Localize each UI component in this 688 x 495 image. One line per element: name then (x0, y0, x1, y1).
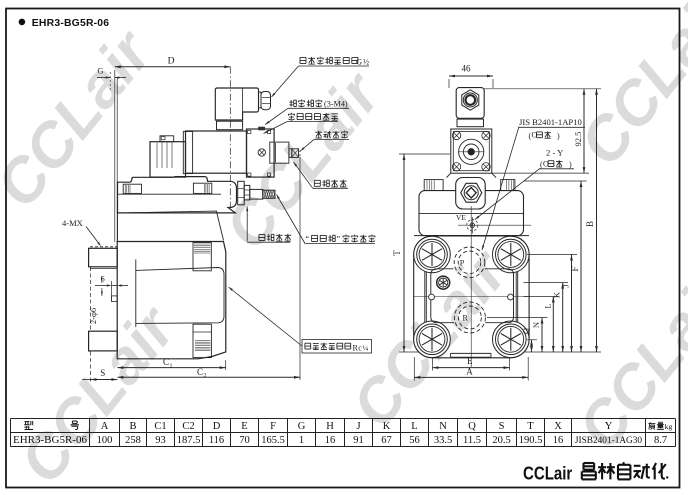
svg-text:F: F (270, 421, 276, 432)
svg-text:16: 16 (325, 435, 336, 446)
svg-text:F: F (570, 266, 580, 271)
svg-text:E: E (467, 356, 473, 366)
svg-text:A: A (101, 421, 109, 432)
svg-text:”: ” (337, 235, 341, 244)
svg-text:¼: ¼ (363, 343, 369, 352)
svg-text:C: C (197, 367, 203, 377)
svg-text:165.5: 165.5 (261, 435, 285, 446)
svg-text:N: N (439, 421, 447, 432)
svg-text:C2: C2 (182, 421, 194, 432)
svg-text:T: T (527, 421, 534, 432)
svg-text:E: E (241, 421, 247, 432)
svg-text:CCLair: CCLair (523, 463, 573, 484)
svg-text:A: A (466, 367, 473, 377)
svg-text:X: X (554, 421, 562, 432)
svg-text:Y: Y (605, 421, 613, 432)
svg-text:Q: Q (468, 421, 476, 432)
svg-text:G: G (356, 57, 362, 67)
svg-text:6: 6 (100, 274, 104, 284)
svg-text:JIS B2401-1AP10: JIS B2401-1AP10 (519, 117, 582, 127)
svg-text:33.5: 33.5 (434, 435, 452, 446)
svg-text:20.5: 20.5 (492, 435, 510, 446)
svg-text:1: 1 (170, 364, 173, 370)
svg-text:D: D (168, 57, 175, 67)
svg-text:JISB2401-1AG30: JISB2401-1AG30 (575, 436, 642, 446)
svg-text:L: L (411, 421, 417, 432)
svg-text:K: K (383, 421, 391, 432)
svg-text:258: 258 (125, 435, 141, 446)
svg-text:11.5: 11.5 (463, 435, 481, 446)
svg-text:D: D (213, 421, 221, 432)
svg-text:EHR3-BG5R-06: EHR3-BG5R-06 (32, 18, 109, 29)
svg-text:S: S (100, 368, 105, 378)
svg-text:2-φ6: 2-φ6 (88, 308, 98, 324)
svg-text:R: R (463, 314, 469, 323)
svg-text:P: P (460, 258, 465, 267)
svg-text:70: 70 (239, 435, 250, 446)
svg-text:EHR3-BG5R-06: EHR3-BG5R-06 (13, 434, 87, 446)
svg-text:C1: C1 (154, 421, 166, 432)
svg-text:93: 93 (155, 435, 166, 446)
svg-text:91: 91 (353, 435, 364, 446)
svg-text:G: G (97, 66, 103, 76)
svg-text:kg: kg (665, 422, 673, 431)
svg-text:C: C (163, 357, 169, 367)
svg-text:67: 67 (381, 435, 392, 446)
svg-text:H: H (326, 421, 334, 432)
svg-text:G: G (298, 421, 306, 432)
svg-text:16: 16 (553, 435, 564, 446)
svg-text:S: S (499, 421, 505, 432)
svg-text:1: 1 (299, 435, 304, 446)
svg-text:4-MX: 4-MX (62, 218, 83, 228)
svg-text:“: “ (306, 235, 310, 244)
svg-text:T: T (392, 250, 402, 256)
svg-text:187.5: 187.5 (177, 435, 201, 446)
svg-text:190.5: 190.5 (519, 435, 543, 446)
svg-text:(3-M4): (3-M4) (324, 99, 348, 108)
svg-text:116: 116 (209, 435, 224, 446)
svg-text:J: J (356, 421, 360, 432)
svg-text:92.5: 92.5 (573, 132, 583, 147)
svg-text:K: K (552, 291, 562, 298)
svg-text:8.7: 8.7 (654, 435, 667, 446)
svg-text:½: ½ (363, 58, 369, 67)
svg-text:46: 46 (462, 64, 472, 74)
svg-text:L: L (542, 303, 552, 308)
svg-text:): ) (557, 132, 560, 141)
svg-text:2: 2 (204, 373, 207, 379)
svg-text:): ) (569, 160, 572, 169)
svg-text:N: N (531, 322, 541, 328)
svg-text:B: B (585, 221, 595, 227)
svg-text:100: 100 (97, 435, 113, 446)
svg-text:B: B (129, 421, 136, 432)
svg-text:VE: VE (456, 213, 466, 222)
svg-text:2 - Y: 2 - Y (546, 148, 563, 158)
svg-text:56: 56 (409, 435, 420, 446)
svg-text:Q: Q (521, 328, 531, 334)
